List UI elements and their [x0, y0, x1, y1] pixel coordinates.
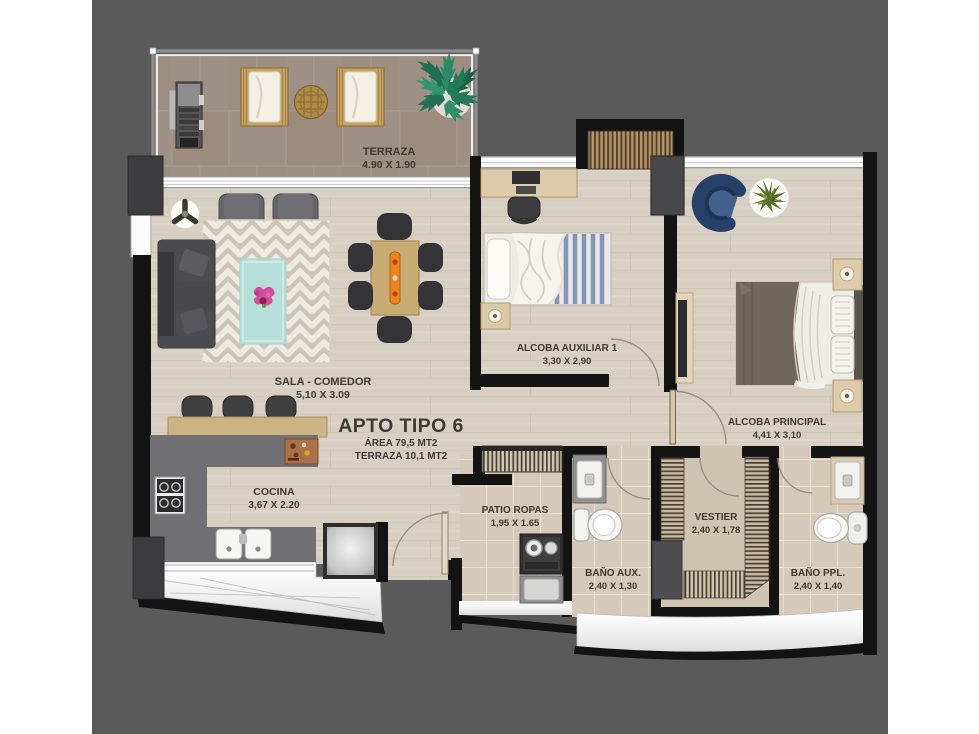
- svg-text:4.90 X 1.90: 4.90 X 1.90: [362, 159, 416, 171]
- svg-text:TERRAZA: TERRAZA: [363, 146, 416, 158]
- svg-text:VESTIER: VESTIER: [695, 512, 739, 523]
- svg-text:SALA - COMEDOR: SALA - COMEDOR: [275, 376, 372, 388]
- svg-text:BAÑO AUX.: BAÑO AUX.: [585, 566, 641, 579]
- svg-text:ALCOBA AUXILIAR 1: ALCOBA AUXILIAR 1: [517, 343, 618, 354]
- svg-text:APTO TIPO 6: APTO TIPO 6: [338, 415, 463, 437]
- svg-text:COCINA: COCINA: [253, 486, 295, 498]
- svg-text:3,67 X 2.20: 3,67 X 2.20: [248, 500, 300, 511]
- svg-text:BAÑO PPL.: BAÑO PPL.: [791, 566, 846, 579]
- svg-text:2,40 X 1,78: 2,40 X 1,78: [692, 525, 741, 536]
- svg-text:2,40 X 1,30: 2,40 X 1,30: [589, 581, 638, 592]
- svg-text:1,95 X 1.65: 1,95 X 1.65: [491, 518, 540, 529]
- svg-text:4,41 X 3,10: 4,41 X 3,10: [753, 430, 802, 441]
- svg-text:2,40 X 1,40: 2,40 X 1,40: [794, 581, 843, 592]
- svg-text:5,10 X 3.09: 5,10 X 3.09: [296, 389, 350, 401]
- svg-text:PATIO ROPAS: PATIO ROPAS: [482, 505, 549, 516]
- svg-text:ALCOBA PRINCIPAL: ALCOBA PRINCIPAL: [728, 417, 826, 428]
- svg-text:TERRAZA 10,1 MT2: TERRAZA 10,1 MT2: [355, 451, 448, 462]
- svg-text:3,30 X 2,90: 3,30 X 2,90: [543, 356, 592, 367]
- svg-text:ÁREA 79,5 MT2: ÁREA 79,5 MT2: [365, 436, 438, 449]
